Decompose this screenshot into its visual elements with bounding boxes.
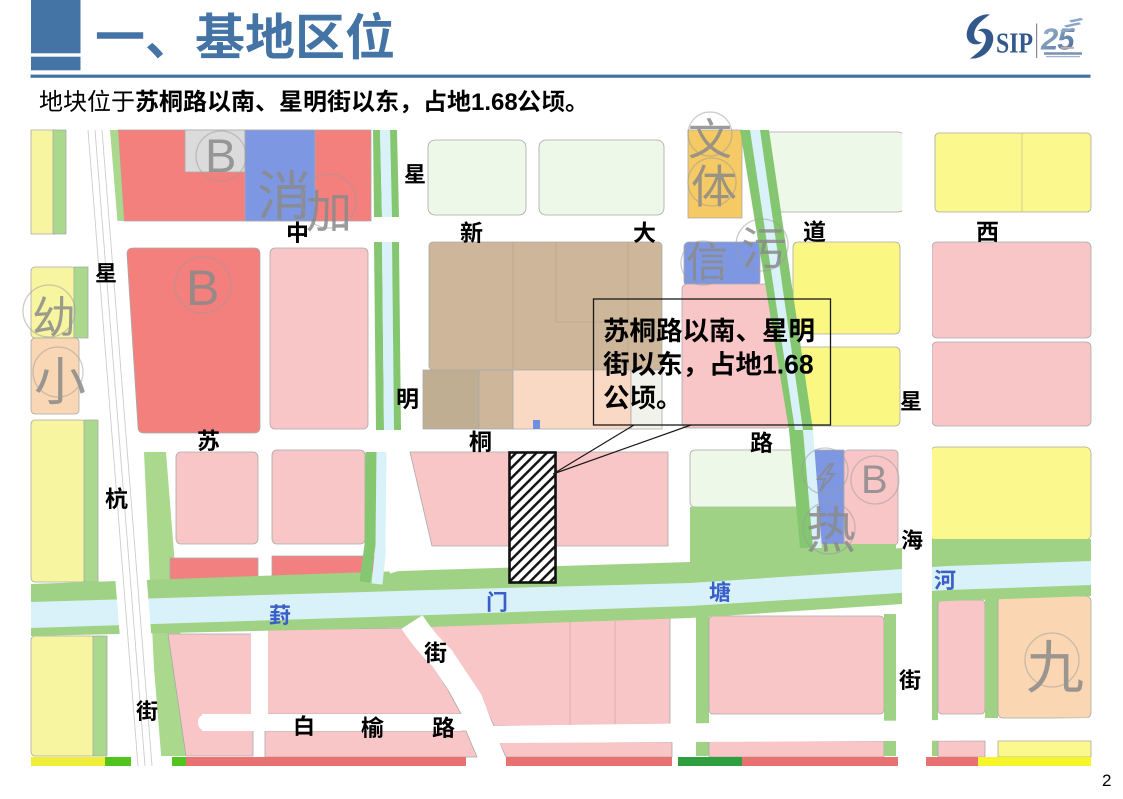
svg-text:B: B: [205, 129, 236, 182]
svg-text:B: B: [861, 458, 888, 502]
svg-text:2: 2: [1102, 771, 1111, 790]
svg-text:1.68: 1.68: [762, 350, 814, 380]
svg-text:25: 25: [1040, 22, 1075, 57]
svg-text:1.68: 1.68: [471, 89, 518, 116]
svg-text:B: B: [186, 260, 219, 316]
svg-text:SIP: SIP: [996, 28, 1033, 60]
